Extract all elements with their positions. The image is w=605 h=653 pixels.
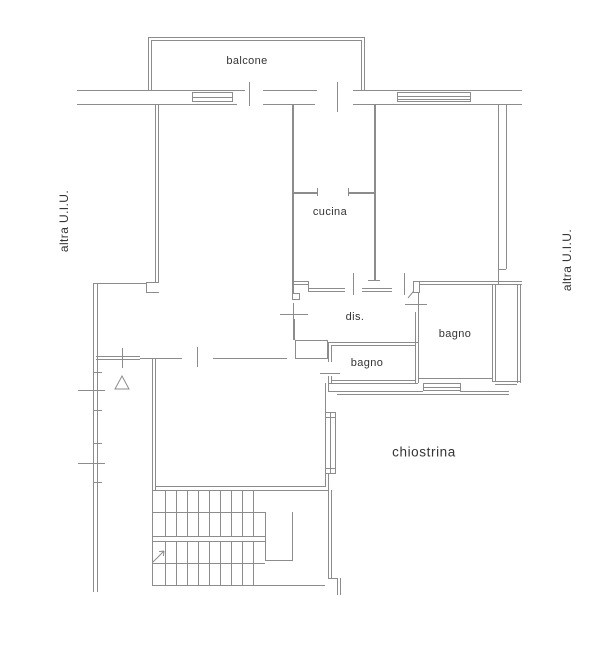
door-opening-tick xyxy=(197,347,198,367)
wall-line xyxy=(418,292,419,383)
wall-line xyxy=(317,188,318,196)
label-dis: dis. xyxy=(346,311,365,323)
stair-step-line xyxy=(253,490,254,512)
wall-line xyxy=(93,443,102,444)
wall-line xyxy=(292,104,294,293)
stair-step-line xyxy=(242,563,243,585)
label-chiostrina: chiostrina xyxy=(392,445,456,460)
stair-step-line xyxy=(198,490,199,512)
window-mullion xyxy=(398,99,470,100)
wall-line xyxy=(146,282,159,283)
wall-line xyxy=(418,378,492,379)
wall-line xyxy=(140,358,182,359)
stair-step-line xyxy=(231,490,232,512)
wall-line xyxy=(155,104,156,282)
window-mullion xyxy=(330,413,331,473)
stair-step-line xyxy=(220,512,221,536)
stair-step-line xyxy=(187,541,188,563)
wall-line xyxy=(506,104,507,269)
stair-step-line xyxy=(253,563,254,585)
wall-line xyxy=(148,37,365,38)
wall-line xyxy=(265,560,293,561)
wall-line xyxy=(517,285,518,383)
stair-step-line xyxy=(176,490,177,512)
wall-line xyxy=(158,104,159,282)
stair-direction-arrow xyxy=(153,551,164,562)
wall-line xyxy=(96,359,140,360)
wall-line xyxy=(308,281,309,291)
door-hinge-block xyxy=(292,293,300,300)
wall-line xyxy=(328,391,423,392)
wall-line xyxy=(331,380,415,381)
door-opening-tick xyxy=(122,348,123,368)
stair-step-line xyxy=(242,512,243,536)
wall-line xyxy=(328,473,329,487)
door-opening-tick xyxy=(337,82,338,112)
wall-line xyxy=(520,285,521,383)
window-mullion xyxy=(424,387,460,388)
wall-line xyxy=(415,284,522,285)
wall-line xyxy=(328,383,418,384)
door-opening-tick xyxy=(78,463,105,464)
shaft-box xyxy=(295,340,328,359)
wall-line xyxy=(265,512,266,560)
door-opening-tick xyxy=(353,273,354,295)
wall-line xyxy=(460,391,509,392)
wall-line xyxy=(292,192,317,194)
wall-line xyxy=(340,578,341,595)
window-symbol xyxy=(192,92,233,102)
wall-line xyxy=(77,104,237,105)
wall-line xyxy=(292,281,308,282)
wall-line xyxy=(348,188,349,196)
wall-line xyxy=(362,288,392,289)
stair-step-line xyxy=(231,563,232,585)
window-symbol xyxy=(397,92,471,102)
wall-line xyxy=(263,90,317,91)
stair-step-line xyxy=(209,490,210,512)
wall-line xyxy=(151,40,362,41)
wall-line xyxy=(361,40,362,90)
stair-step-line xyxy=(176,563,177,585)
door-opening-tick xyxy=(78,390,105,391)
stair-step-line xyxy=(220,490,221,512)
label-bagno-right: bagno xyxy=(439,328,472,340)
stair-step-line xyxy=(198,541,199,563)
stair-step-line xyxy=(209,512,210,536)
stair-step-line xyxy=(253,512,254,536)
wall-line xyxy=(492,381,520,382)
wall-line xyxy=(155,359,156,490)
wall-line xyxy=(292,512,293,560)
stair-step-line xyxy=(165,512,166,536)
wall-line xyxy=(308,291,345,292)
stair-step-line xyxy=(187,563,188,585)
wall-line xyxy=(93,482,102,483)
door-opening-tick xyxy=(320,373,340,374)
wall-line xyxy=(337,578,338,595)
wall-line xyxy=(93,372,102,373)
wall-line xyxy=(325,383,326,412)
wall-line xyxy=(151,40,152,90)
wall-line xyxy=(328,342,418,343)
wall-line xyxy=(337,394,509,395)
stair-step-line xyxy=(176,541,177,563)
wall-line xyxy=(213,358,287,359)
wall-line xyxy=(93,410,102,411)
floorplan: balcone cucina dis. bagno bagno chiostri… xyxy=(0,0,605,653)
label-bagno-lower: bagno xyxy=(351,357,384,369)
window-symbol xyxy=(423,383,461,391)
stair-step-line xyxy=(187,490,188,512)
window-cap xyxy=(326,468,335,469)
wall-line xyxy=(146,292,159,293)
wall-line xyxy=(328,383,329,391)
wall-line xyxy=(328,487,329,578)
wall-line xyxy=(492,284,493,381)
wall-line xyxy=(93,283,94,592)
wall-line xyxy=(498,269,506,270)
stair-step-line xyxy=(209,563,210,585)
wall-line xyxy=(152,585,325,586)
wall-line xyxy=(364,37,365,90)
stair-step-line xyxy=(220,563,221,585)
door-opening-tick xyxy=(280,314,308,315)
wall-line xyxy=(152,490,328,491)
wall-line xyxy=(331,490,332,578)
wall-line xyxy=(77,90,245,91)
entrance-triangle-icon xyxy=(115,376,129,389)
label-altra-uiu-left: altra U.I.U. xyxy=(57,190,71,252)
wall-line xyxy=(263,104,315,105)
wall-line xyxy=(96,356,140,357)
label-altra-uiu-right: altra U.I.U. xyxy=(560,229,574,291)
door-hinge-block xyxy=(413,281,420,293)
window-cap xyxy=(326,417,335,418)
wall-line xyxy=(374,104,376,280)
wall-line xyxy=(97,283,98,592)
stair-step-line xyxy=(165,541,166,563)
stair-step-line xyxy=(176,512,177,536)
wall-line xyxy=(415,281,522,282)
wall-line xyxy=(328,342,329,362)
label-balcone: balcone xyxy=(226,55,267,67)
stair-step-line xyxy=(165,490,166,512)
stair-step-line xyxy=(231,541,232,563)
door-opening-tick xyxy=(404,273,405,295)
wall-line xyxy=(353,104,522,105)
wall-line xyxy=(498,104,499,284)
wall-line xyxy=(348,192,374,194)
wall-line xyxy=(328,578,337,579)
wall-line xyxy=(495,384,517,385)
stair-step-line xyxy=(187,512,188,536)
label-cucina: cucina xyxy=(313,206,347,218)
door-opening-tick xyxy=(249,82,250,106)
wall-line xyxy=(292,284,308,285)
stair-step-line xyxy=(165,563,166,585)
window-mullion xyxy=(193,97,232,98)
wall-line xyxy=(415,312,416,383)
wall-line xyxy=(495,284,496,381)
stair-step-line xyxy=(198,512,199,536)
door-opening-tick xyxy=(405,304,427,305)
stair-step-line xyxy=(198,563,199,585)
wall-line xyxy=(152,536,265,537)
stair-step-line xyxy=(253,541,254,563)
stair-step-line xyxy=(220,541,221,563)
stair-step-line xyxy=(242,541,243,563)
wall-line xyxy=(331,345,332,362)
wall-line xyxy=(368,280,380,281)
wall-line xyxy=(148,37,149,90)
wall-line xyxy=(308,288,345,289)
wall-line xyxy=(93,283,146,284)
stair-step-line xyxy=(231,512,232,536)
stair-step-line xyxy=(209,541,210,563)
wall-line xyxy=(353,90,522,91)
wall-line xyxy=(293,303,294,319)
wall-line xyxy=(155,486,325,487)
stair-step-line xyxy=(242,490,243,512)
wall-line xyxy=(325,473,326,487)
wall-line xyxy=(293,319,295,340)
symbols-overlay xyxy=(0,0,605,653)
wall-line xyxy=(362,291,392,292)
window-symbol xyxy=(325,412,336,474)
wall-line xyxy=(331,345,415,346)
window-mullion xyxy=(398,96,470,97)
wall-line xyxy=(152,359,153,585)
wall-line xyxy=(328,376,329,383)
